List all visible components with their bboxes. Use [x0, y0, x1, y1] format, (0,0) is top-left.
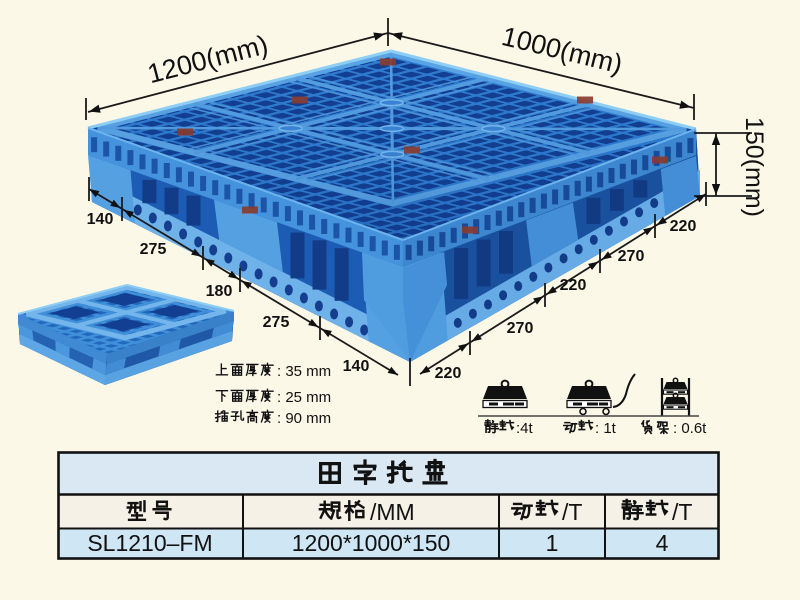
svg-text:275: 275 [140, 241, 167, 258]
svg-text:220: 220 [560, 277, 587, 294]
svg-text::4t: :4t [516, 420, 534, 437]
svg-text:220: 220 [670, 218, 697, 235]
svg-text:4: 4 [656, 530, 669, 556]
svg-text:270: 270 [507, 320, 534, 337]
svg-text:220: 220 [435, 365, 462, 382]
svg-text:1: 1 [546, 530, 559, 556]
svg-text:: 1t: : 1t [595, 420, 617, 437]
svg-text:/MM: /MM [370, 499, 415, 525]
svg-text:: 35 mm: : 35 mm [277, 363, 331, 380]
svg-text:275: 275 [263, 314, 290, 331]
svg-text:: 25 mm: : 25 mm [277, 389, 331, 406]
svg-text:/T: /T [672, 499, 692, 525]
svg-text:180: 180 [206, 283, 233, 300]
svg-text:1200*1000*150: 1200*1000*150 [292, 530, 451, 556]
svg-text:: 90 mm: : 90 mm [277, 410, 331, 427]
svg-text:270: 270 [618, 248, 645, 265]
svg-text:: 0.6t: : 0.6t [673, 420, 707, 437]
svg-text:SL1210–FM: SL1210–FM [87, 530, 212, 556]
svg-text:140: 140 [343, 358, 370, 375]
svg-text:1000(mm): 1000(mm) [499, 21, 626, 79]
svg-text:140: 140 [87, 211, 114, 228]
svg-text:150(mm): 150(mm) [740, 117, 768, 217]
svg-text:/T: /T [562, 499, 582, 525]
